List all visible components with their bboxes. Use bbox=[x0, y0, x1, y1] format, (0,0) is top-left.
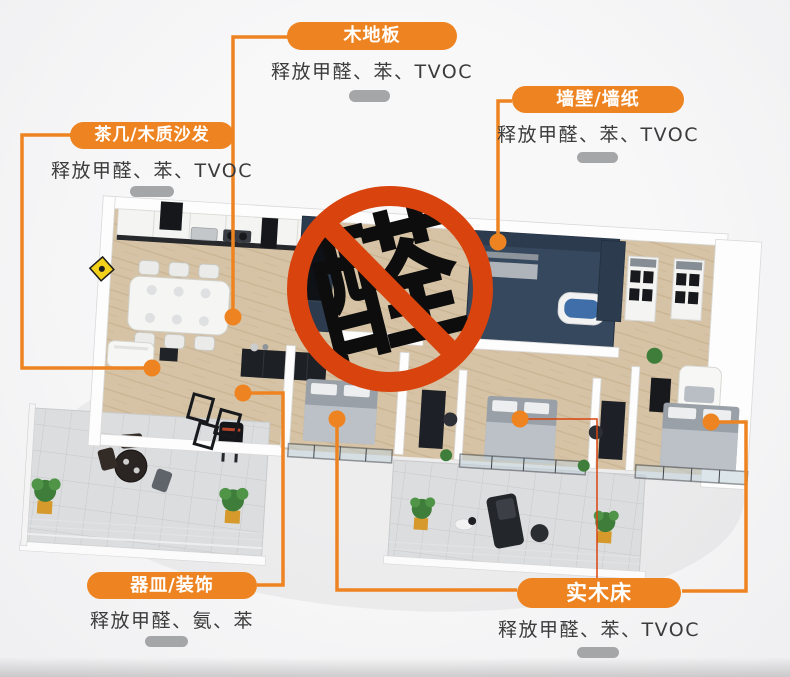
dot-vessel-decoration bbox=[235, 385, 252, 402]
balcony-center bbox=[383, 460, 651, 580]
prohibition-sign: 醛 bbox=[293, 187, 483, 392]
callout-tea-table-sofa-title: 茶几/木质沙发 bbox=[70, 122, 234, 149]
decoration-pill bbox=[577, 647, 619, 658]
decoration-pill bbox=[349, 90, 390, 102]
callout-tea-table-sofa: 茶几/木质沙发 释放甲醛、苯、TVOC bbox=[42, 122, 262, 183]
callout-vessel-decoration-title: 器皿/装饰 bbox=[87, 572, 257, 599]
callout-solid-wood-bed-desc: 释放甲醛、苯、TVOC bbox=[489, 615, 709, 642]
callout-solid-wood-bed-title: 实木床 bbox=[517, 578, 681, 608]
callout-wall-wallpaper: 墙壁/墙纸 释放甲醛、苯、TVOC bbox=[488, 86, 708, 147]
callout-wood-floor: 木地板 释放甲醛、苯、TVOC bbox=[262, 22, 482, 84]
dot-bed-2 bbox=[512, 411, 529, 428]
callout-wall-wallpaper-desc: 释放甲醛、苯、TVOC bbox=[488, 120, 708, 147]
decoration-pill bbox=[130, 186, 174, 197]
sink bbox=[191, 227, 218, 241]
callout-solid-wood-bed: 实木床 释放甲醛、苯、TVOC bbox=[489, 578, 709, 642]
range-hood bbox=[159, 201, 183, 230]
shelf-unit bbox=[625, 256, 659, 322]
cooktop bbox=[223, 229, 252, 243]
dot-wall-wallpaper bbox=[490, 234, 507, 251]
shelf-unit bbox=[671, 259, 705, 321]
decoration-pill bbox=[577, 152, 618, 163]
bottom-shadow bbox=[0, 657, 790, 677]
dot-wood-floor bbox=[225, 309, 242, 326]
callout-wood-floor-desc: 释放甲醛、苯、TVOC bbox=[262, 57, 482, 84]
infographic-stage: 醛 木地板 释放甲醛、苯、TVOC 墙壁/墙纸 bbox=[0, 0, 790, 677]
dot-bed-1 bbox=[329, 411, 346, 428]
callout-wood-floor-title: 木地板 bbox=[287, 22, 457, 50]
callout-wall-wallpaper-title: 墙壁/墙纸 bbox=[512, 86, 684, 113]
callout-vessel-decoration-desc: 释放甲醛、氨、苯 bbox=[62, 606, 282, 633]
dot-tea-table-sofa bbox=[144, 360, 161, 377]
decoration-pill bbox=[145, 636, 188, 647]
oven bbox=[260, 218, 278, 249]
dot-bed-3 bbox=[703, 414, 720, 431]
callout-vessel-decoration: 器皿/装饰 释放甲醛、氨、苯 bbox=[62, 572, 282, 633]
callout-tea-table-sofa-desc: 释放甲醛、苯、TVOC bbox=[42, 156, 262, 183]
